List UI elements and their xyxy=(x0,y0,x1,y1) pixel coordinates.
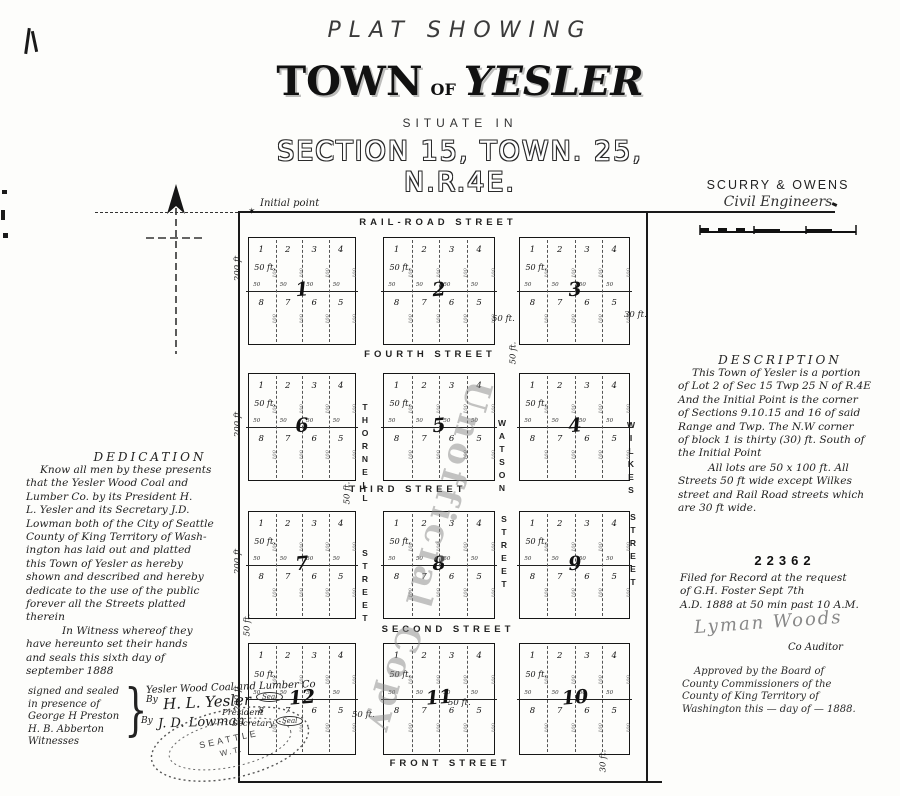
text-line: Range and Twp. The N.W corner xyxy=(678,421,896,434)
lot-number: 6 xyxy=(584,434,589,444)
lot-number: 2 xyxy=(557,651,562,661)
lot-depth-tick: 100 xyxy=(598,315,604,325)
lot-width-tick: 50 xyxy=(253,282,260,288)
lot-number: 8 xyxy=(394,298,399,308)
lot-number: 8 xyxy=(530,434,535,444)
text-line: signed and sealed xyxy=(28,686,128,699)
lot-size-label: 50 ft. xyxy=(525,537,546,546)
street-label-watson-street: STREET xyxy=(499,514,509,592)
auditor-title: Co Auditor xyxy=(788,642,843,653)
lot-number: 4 xyxy=(476,519,481,529)
lot-width-tick: 50 xyxy=(333,418,340,424)
lot-width-tick: 50 xyxy=(552,556,559,562)
lot-number: 6 xyxy=(584,298,589,308)
lot-width-tick: 50 xyxy=(524,556,531,562)
scale-bar xyxy=(698,222,860,238)
lot-divider xyxy=(602,240,603,342)
lot-number: 4 xyxy=(476,651,481,661)
lot-number: 6 xyxy=(449,298,454,308)
lot-depth-tick: 100 xyxy=(351,589,357,599)
lot-divider xyxy=(547,646,548,752)
text-line: Witnesses xyxy=(28,736,128,749)
lot-number: 6 xyxy=(312,434,317,444)
text-line: of G.H. Foster Sept 7th xyxy=(680,585,895,598)
description-para2: All lots are 50 x 100 ft. AllStreets 50 … xyxy=(678,462,896,516)
lot-depth-tick: 100 xyxy=(463,675,469,685)
street-width-label: 50 ft. xyxy=(508,342,518,365)
lot-number: 2 xyxy=(285,245,290,255)
street-label-watson: WATSON xyxy=(497,418,507,496)
lot-number: 3 xyxy=(449,245,454,255)
lot-number: 4 xyxy=(612,519,617,529)
approval-block: Approved by the Board ofCounty Commissio… xyxy=(682,666,897,716)
lot-depth-tick: 100 xyxy=(571,542,577,552)
text-line: Lowman both of the City of Seattle xyxy=(26,518,241,531)
lot-number: 4 xyxy=(612,381,617,391)
lot-size-label: 50 ft. xyxy=(254,537,275,546)
lot-divider xyxy=(329,514,330,616)
text-line: Approved by the Board of xyxy=(682,666,897,679)
lot-depth-tick: 100 xyxy=(490,724,496,734)
lot-depth-tick: 100 xyxy=(298,542,304,552)
lot-depth-tick: 100 xyxy=(463,542,469,552)
witness-block: signed and sealedin presence ofGeorge H … xyxy=(28,686,128,749)
lot-number: 1 xyxy=(530,381,535,391)
lot-depth-tick: 100 xyxy=(325,542,331,552)
lot-depth-tick: 100 xyxy=(463,268,469,278)
lot-depth-tick: 100 xyxy=(435,675,441,685)
lot-depth-tick: 100 xyxy=(298,404,304,414)
lot-size-label: 50 ft. xyxy=(254,670,275,679)
lot-depth-tick: 100 xyxy=(625,315,631,325)
scan-artifact xyxy=(1,210,5,220)
lot-width-tick: 50 xyxy=(280,418,287,424)
lot-depth-tick: 100 xyxy=(298,589,304,599)
lot-depth-tick: 100 xyxy=(351,268,357,278)
lot-number: 8 xyxy=(530,298,535,308)
text-line: George H Preston xyxy=(28,711,128,724)
lot-number: 8 xyxy=(259,298,264,308)
lot-divider xyxy=(547,240,548,342)
block-2: 1850100100275010010036501001004550100100… xyxy=(383,237,495,345)
text-line: Know all men by these presents xyxy=(26,464,241,477)
lot-number: 8 xyxy=(259,572,264,582)
lot-divider xyxy=(602,646,603,752)
text-line: Washington this — day of — 1888. xyxy=(682,704,897,717)
lot-width-tick: 50 xyxy=(388,282,395,288)
text-line: County of King Territory of xyxy=(682,691,897,704)
text-line: therein xyxy=(26,611,241,624)
text-line: of Lot 2 of Sec 15 Twp 25 N of R.4E xyxy=(678,380,896,393)
lot-number: 5 xyxy=(612,298,617,308)
lot-number: 1 xyxy=(530,651,535,661)
lot-depth-tick: 100 xyxy=(625,404,631,414)
lot-divider xyxy=(329,646,330,752)
lot-number: 2 xyxy=(557,519,562,529)
text-line: forever all the Streets platted xyxy=(26,598,241,611)
lot-divider xyxy=(329,376,330,478)
street-label-front: FRONT STREET xyxy=(365,758,535,769)
lot-width-tick: 50 xyxy=(606,690,613,696)
text-line: the Initial Point xyxy=(678,447,896,460)
north-arrow-icon xyxy=(140,178,212,358)
block-number: 9 xyxy=(567,552,582,575)
lot-number: 5 xyxy=(338,572,343,582)
lot-width-tick: 50 xyxy=(471,690,478,696)
lot-depth-tick: 100 xyxy=(571,675,577,685)
lot-depth-tick: 100 xyxy=(490,589,496,599)
lot-depth-tick: 100 xyxy=(325,268,331,278)
lot-number: 5 xyxy=(338,706,343,716)
lot-number: 7 xyxy=(557,434,562,444)
text-line: Filed for Record at the request xyxy=(680,572,895,585)
block-number: 2 xyxy=(431,278,446,301)
street-label-railroad: RAIL-ROAD STREET xyxy=(353,217,523,228)
plat-situate: SITUATE IN xyxy=(305,116,615,130)
lot-width-tick: 50 xyxy=(253,556,260,562)
text-line: shown and described and hereby xyxy=(26,571,241,584)
lot-width-tick: 50 xyxy=(333,556,340,562)
lot-number: 7 xyxy=(285,572,290,582)
lot-width-tick: 50 xyxy=(606,418,613,424)
lot-number: 1 xyxy=(394,381,399,391)
lot-number: 4 xyxy=(338,381,343,391)
lot-number: 7 xyxy=(557,298,562,308)
lot-depth-tick: 100 xyxy=(272,589,278,599)
lot-depth-tick: 100 xyxy=(490,451,496,461)
dedication-heading: DEDICATION xyxy=(60,450,240,464)
lot-number: 1 xyxy=(530,245,535,255)
initial-point-marker: ✶ xyxy=(248,206,256,217)
lot-number: 5 xyxy=(476,298,481,308)
lot-width-tick: 50 xyxy=(552,690,559,696)
lot-size-label: 50 ft. xyxy=(390,263,411,272)
lot-divider xyxy=(276,514,277,616)
lot-number: 5 xyxy=(338,298,343,308)
lot-number: 3 xyxy=(584,245,589,255)
lot-depth-tick: 100 xyxy=(325,404,331,414)
lot-depth-tick: 100 xyxy=(571,404,577,414)
lot-divider xyxy=(412,240,413,342)
lot-depth-tick: 100 xyxy=(598,404,604,414)
lot-depth-tick: 100 xyxy=(408,315,414,325)
lot-number: 1 xyxy=(259,519,264,529)
block-number: 3 xyxy=(567,278,582,301)
lot-width-tick: 50 xyxy=(416,282,423,288)
scan-artifact xyxy=(31,31,38,52)
lot-number: 2 xyxy=(421,245,426,255)
filing-number: 22362 xyxy=(700,553,870,568)
lot-width-tick: 50 xyxy=(333,690,340,696)
lot-depth-tick: 100 xyxy=(598,451,604,461)
lot-number: 8 xyxy=(394,572,399,582)
text-line: dedicate to the use of the public xyxy=(26,585,241,598)
lot-width-tick: 50 xyxy=(524,690,531,696)
lot-depth-tick: 100 xyxy=(272,315,278,325)
title-yesler: YESLER xyxy=(464,58,644,105)
text-line: Streets 50 ft wide except Wilkes xyxy=(678,475,896,488)
lot-divider xyxy=(467,514,468,616)
lot-number: 4 xyxy=(338,651,343,661)
lot-number: 5 xyxy=(476,572,481,582)
lot-width-tick: 50 xyxy=(388,556,395,562)
lot-number: 6 xyxy=(449,572,454,582)
text-line: This Town of Yesler is a portion xyxy=(678,367,896,380)
street-width-label: 50 ft. xyxy=(342,482,352,505)
text-line: of block 1 is thirty (30) ft. South of xyxy=(678,434,896,447)
depth-label: 200 ft. xyxy=(233,253,243,281)
lot-width-tick: 50 xyxy=(416,418,423,424)
lot-divider xyxy=(602,376,603,478)
lot-depth-tick: 100 xyxy=(298,315,304,325)
notary-seal: SEATTLE W.T. xyxy=(142,698,318,790)
lot-number: 5 xyxy=(338,434,343,444)
lot-number: 3 xyxy=(312,381,317,391)
text-line: street and Rail Road streets which xyxy=(678,489,896,502)
lot-number: 5 xyxy=(612,434,617,444)
lot-number: 3 xyxy=(584,651,589,661)
lot-width-tick: 50 xyxy=(280,556,287,562)
lot-depth-tick: 100 xyxy=(490,675,496,685)
text-line: are 30 ft wide. xyxy=(678,502,896,515)
lot-depth-tick: 100 xyxy=(598,724,604,734)
lot-number: 4 xyxy=(476,245,481,255)
plat-document: PLAT SHOWING TOWNOFYESLER SITUATE IN SEC… xyxy=(0,0,900,796)
block-number: 6 xyxy=(294,414,309,437)
lot-width-tick: 50 xyxy=(471,282,478,288)
lot-depth-tick: 100 xyxy=(298,268,304,278)
lot-depth-tick: 100 xyxy=(435,724,441,734)
text-line: have hereunto set their hands xyxy=(26,638,241,651)
title-town: TOWN xyxy=(276,58,422,105)
filing-lines: Filed for Record at the requestof G.H. F… xyxy=(680,572,895,612)
text-line: County of King Territory of Wash- xyxy=(26,531,241,544)
scan-artifact xyxy=(24,28,31,54)
lot-number: 3 xyxy=(312,245,317,255)
lot-divider xyxy=(547,376,548,478)
lot-depth-tick: 100 xyxy=(408,451,414,461)
text-line: and seals this sixth day of xyxy=(26,652,241,665)
lot-divider xyxy=(467,646,468,752)
lot-width-tick: 50 xyxy=(552,418,559,424)
lot-size-label: 50 ft. xyxy=(254,263,275,272)
lot-depth-tick: 100 xyxy=(463,589,469,599)
lot-number: 3 xyxy=(312,651,317,661)
lot-divider xyxy=(467,240,468,342)
lot-number: 1 xyxy=(394,245,399,255)
lot-depth-tick: 100 xyxy=(435,404,441,414)
lot-depth-tick: 100 xyxy=(571,724,577,734)
block-number: 1 xyxy=(294,278,309,301)
lot-depth-tick: 100 xyxy=(408,724,414,734)
lot-depth-tick: 100 xyxy=(544,589,550,599)
lot-number: 6 xyxy=(584,572,589,582)
lot-depth-tick: 100 xyxy=(463,315,469,325)
street-label-fourth: FOURTH STREET xyxy=(345,349,515,360)
lot-depth-tick: 100 xyxy=(571,315,577,325)
lot-depth-tick: 100 xyxy=(325,589,331,599)
text-line: L. Yesler and its Secretary J.D. xyxy=(26,504,241,517)
lot-divider xyxy=(276,376,277,478)
lot-number: 2 xyxy=(557,245,562,255)
engineers-name: SCURRY & OWENS xyxy=(678,178,878,192)
lot-number: 5 xyxy=(612,706,617,716)
title-of: OF xyxy=(431,80,456,99)
lot-size-label: 50 ft. xyxy=(390,399,411,408)
engineers-title: Civil Engineers xyxy=(678,194,878,210)
lot-depth-tick: 100 xyxy=(625,451,631,461)
lot-width-tick: 50 xyxy=(471,556,478,562)
lot-size-label: 50 ft. xyxy=(525,670,546,679)
plat-kicker: PLAT SHOWING xyxy=(285,18,635,43)
plat-title: TOWNOFYESLER xyxy=(240,58,680,105)
scan-artifact xyxy=(3,233,8,238)
lot-number: 2 xyxy=(285,381,290,391)
lot-number: 5 xyxy=(612,572,617,582)
lot-depth-tick: 100 xyxy=(435,268,441,278)
lot-width-tick: 50 xyxy=(388,418,395,424)
text-line: H. B. Abberton xyxy=(28,724,128,737)
lot-depth-tick: 100 xyxy=(625,724,631,734)
lot-width-tick: 50 xyxy=(333,282,340,288)
street-label-thornell: THORNELL xyxy=(360,402,370,506)
lot-number: 6 xyxy=(312,298,317,308)
dedication-body: Know all men by these presentsthat the Y… xyxy=(26,464,241,679)
lot-depth-tick: 100 xyxy=(298,451,304,461)
block-10: 1850100100275010010036501001004550100100… xyxy=(519,643,630,755)
east-boundary-line xyxy=(646,211,648,783)
lot-size-label: 50 ft. xyxy=(254,399,275,408)
lot-number: 7 xyxy=(285,434,290,444)
lot-divider xyxy=(547,514,548,616)
lot-width-tick: 50 xyxy=(552,282,559,288)
lot-depth-tick: 100 xyxy=(351,724,357,734)
lot-number: 3 xyxy=(312,519,317,529)
lot-depth-tick: 100 xyxy=(625,675,631,685)
text-line: Lumber Co. by its President H. xyxy=(26,491,241,504)
lot-depth-tick: 100 xyxy=(351,542,357,552)
description-para1: This Town of Yesler is a portionof Lot 2… xyxy=(678,367,896,461)
scan-artifact xyxy=(2,190,7,194)
lot-number: 1 xyxy=(259,245,264,255)
lot-width-tick: 50 xyxy=(280,282,287,288)
lot-number: 1 xyxy=(259,381,264,391)
lot-number: 4 xyxy=(612,651,617,661)
block-6: 1850100100275010010036501001004550100100… xyxy=(248,373,356,481)
lot-divider xyxy=(602,514,603,616)
lot-depth-tick: 100 xyxy=(571,268,577,278)
text-line: september 1888 xyxy=(26,665,241,678)
text-line: And the Initial Point is the corner xyxy=(678,394,896,407)
lot-size-label: 50 ft. xyxy=(525,263,546,272)
lot-number: 4 xyxy=(612,245,617,255)
lot-number: 3 xyxy=(449,381,454,391)
block-number: 10 xyxy=(560,686,588,710)
lot-depth-tick: 100 xyxy=(325,451,331,461)
seal-text-wt: W.T. xyxy=(219,744,244,758)
initial-point-label: Initial point xyxy=(260,198,319,209)
text-line: County Commissioners of the xyxy=(682,679,897,692)
lot-depth-tick: 100 xyxy=(544,451,550,461)
lot-width-tick: 50 xyxy=(524,282,531,288)
lot-size-label: 50 ft. xyxy=(390,537,411,546)
street-label-thornell-street: STREET xyxy=(360,548,370,626)
lot-depth-tick: 100 xyxy=(272,451,278,461)
lot-number: 7 xyxy=(421,434,426,444)
lot-number: 8 xyxy=(530,706,535,716)
block-number: 11 xyxy=(425,686,453,710)
lot-depth-tick: 100 xyxy=(571,451,577,461)
plat-section: SECTION 15, TOWN. 25, N.R.4E. xyxy=(230,136,690,198)
section-line xyxy=(95,212,238,213)
lot-number: 1 xyxy=(259,651,264,661)
lot-number: 1 xyxy=(394,519,399,529)
lot-divider xyxy=(412,376,413,478)
lot-number: 2 xyxy=(285,651,290,661)
lot-depth-tick: 100 xyxy=(598,542,604,552)
text-line: that the Yesler Wood Coal and xyxy=(26,477,241,490)
lot-number: 4 xyxy=(338,245,343,255)
lot-depth-tick: 100 xyxy=(490,268,496,278)
text-line: this Town of Yesler as hereby xyxy=(26,558,241,571)
lot-depth-tick: 100 xyxy=(625,542,631,552)
north-boundary-line xyxy=(238,211,835,213)
lot-depth-tick: 100 xyxy=(351,404,357,414)
lot-depth-tick: 100 xyxy=(490,315,496,325)
lot-number: 2 xyxy=(557,381,562,391)
lot-width-tick: 50 xyxy=(253,418,260,424)
lot-depth-tick: 100 xyxy=(544,724,550,734)
block-4: 1850100100275010010036501001004550100100… xyxy=(519,373,630,481)
text-line: In Witness whereof they xyxy=(26,625,241,638)
block-number: 7 xyxy=(294,552,309,575)
text-line: in presence of xyxy=(28,699,128,712)
lot-number: 2 xyxy=(421,381,426,391)
lot-depth-tick: 100 xyxy=(435,315,441,325)
text-line: ington has laid out and platted xyxy=(26,544,241,557)
block-7: 1850100100275010010036501001004550100100… xyxy=(248,511,356,619)
lot-depth-tick: 100 xyxy=(598,589,604,599)
lot-number: 3 xyxy=(584,381,589,391)
lot-depth-tick: 100 xyxy=(544,315,550,325)
lot-number: 7 xyxy=(285,298,290,308)
block-3: 1850100100275010010036501001004550100100… xyxy=(519,237,630,345)
lot-width-tick: 50 xyxy=(524,418,531,424)
lot-number: 3 xyxy=(449,651,454,661)
lot-number: 5 xyxy=(476,706,481,716)
lot-number: 6 xyxy=(312,572,317,582)
lot-number: 7 xyxy=(557,572,562,582)
lot-depth-tick: 100 xyxy=(351,675,357,685)
lot-size-label: 50 ft. xyxy=(525,399,546,408)
lot-number: 8 xyxy=(394,434,399,444)
lot-depth-tick: 100 xyxy=(325,315,331,325)
lot-depth-tick: 100 xyxy=(351,315,357,325)
lot-depth-tick: 100 xyxy=(598,675,604,685)
block-1: 1850100100275010010036501001004550100100… xyxy=(248,237,356,345)
lot-depth-tick: 100 xyxy=(351,451,357,461)
lot-divider xyxy=(329,240,330,342)
depth-label: 200 ft. xyxy=(233,409,243,437)
lot-number: 3 xyxy=(584,519,589,529)
lot-width-tick: 50 xyxy=(606,556,613,562)
lot-width-tick: 50 xyxy=(606,282,613,288)
lot-depth-tick: 100 xyxy=(571,589,577,599)
lot-depth-tick: 100 xyxy=(325,675,331,685)
lot-number: 1 xyxy=(530,519,535,529)
lot-width-tick: 50 xyxy=(416,690,423,696)
block-number: 4 xyxy=(567,414,582,437)
